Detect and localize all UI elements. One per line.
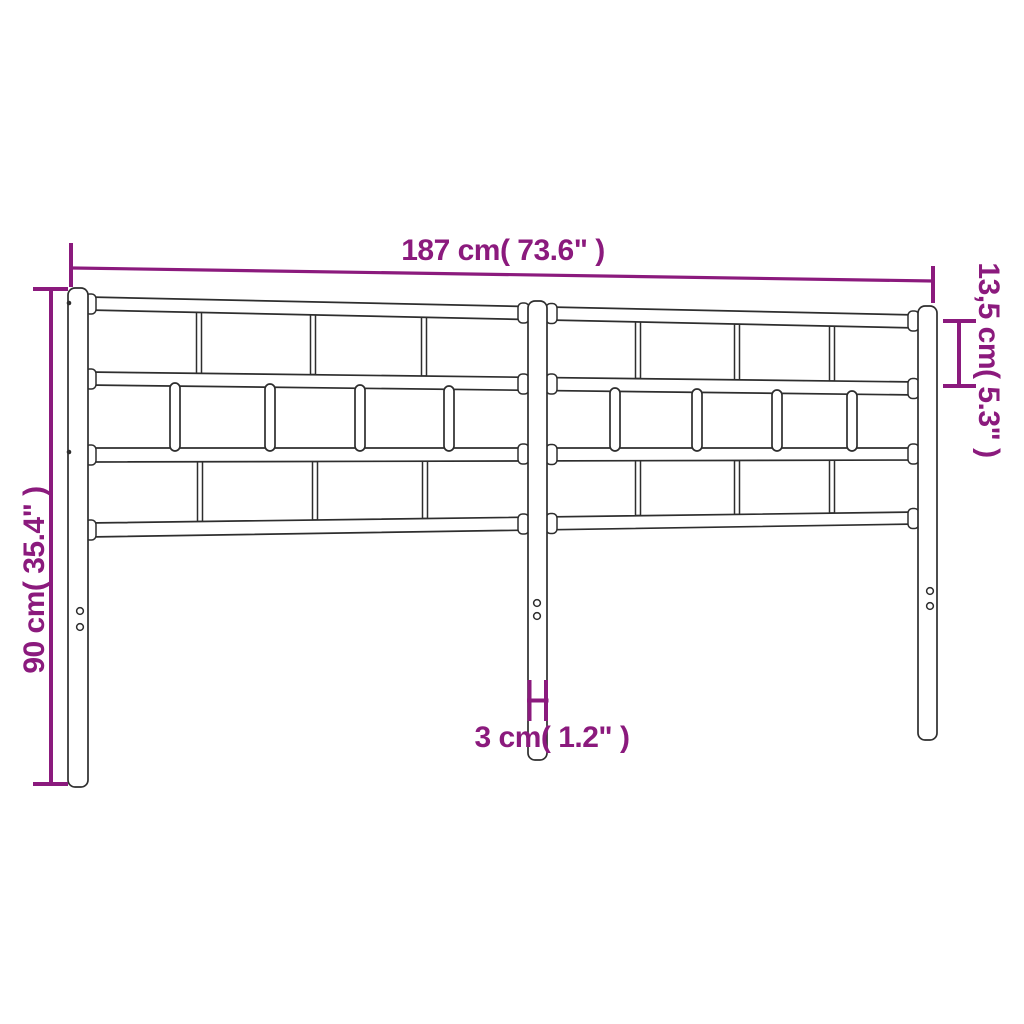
top-section-dimension: 13,5 cm( 5.3" ) xyxy=(943,262,1005,457)
top-rail xyxy=(88,297,918,328)
headboard-drawing xyxy=(67,288,937,787)
rails xyxy=(88,297,918,537)
slat xyxy=(198,462,203,522)
width-dimension: 187 cm( 73.6" ) xyxy=(71,234,933,303)
screw-hole xyxy=(534,600,541,607)
capsule-slat xyxy=(444,386,454,451)
rail-end-caps xyxy=(85,294,919,540)
capsule-slat xyxy=(692,389,702,451)
height-dimension-label: 90 cm( 35.4" ) xyxy=(18,486,51,673)
bolt-dot xyxy=(67,450,72,455)
capsule-slat xyxy=(170,383,180,451)
top-section-dimension-label: 13,5 cm( 5.3" ) xyxy=(972,262,1005,457)
screw-holes xyxy=(77,588,934,631)
product-dimension-image: 187 cm( 73.6" ) 13,5 cm( 5.3" ) 90 cm( 3… xyxy=(0,0,1024,1024)
slat xyxy=(735,324,740,380)
bolt-dot xyxy=(67,301,72,306)
post-width-dimension-label: 3 cm( 1.2" ) xyxy=(475,721,630,754)
screw-hole xyxy=(534,613,541,620)
width-dimension-line xyxy=(73,268,933,281)
capsule-slat xyxy=(772,390,782,451)
screw-hole xyxy=(927,603,934,610)
slat xyxy=(422,317,427,376)
capsule-slat xyxy=(355,385,365,451)
slat xyxy=(735,461,740,515)
capsule-slat xyxy=(265,384,275,451)
slat xyxy=(830,460,835,513)
screw-hole xyxy=(77,624,84,631)
width-dimension-label: 187 cm( 73.6" ) xyxy=(401,234,605,267)
screw-hole xyxy=(927,588,934,595)
slat xyxy=(830,326,835,381)
screw-hole xyxy=(77,608,84,615)
third-rail xyxy=(88,448,918,462)
slat-row-bottom xyxy=(198,460,835,522)
bottom-rail xyxy=(88,512,918,537)
second-rail xyxy=(88,372,918,395)
slat xyxy=(636,322,641,379)
height-dimension: 90 cm( 35.4" ) xyxy=(18,289,68,784)
slat xyxy=(423,461,428,519)
slat xyxy=(311,315,316,375)
headboard-dimension-diagram: 187 cm( 73.6" ) 13,5 cm( 5.3" ) 90 cm( 3… xyxy=(0,0,1024,1024)
slat xyxy=(197,312,202,374)
capsule-slat xyxy=(610,388,620,451)
right-post xyxy=(918,306,937,740)
capsule-slat xyxy=(847,391,857,451)
post-width-dimension: 3 cm( 1.2" ) xyxy=(475,680,630,754)
slat xyxy=(636,461,641,516)
left-post xyxy=(68,288,88,787)
slat xyxy=(313,462,318,521)
